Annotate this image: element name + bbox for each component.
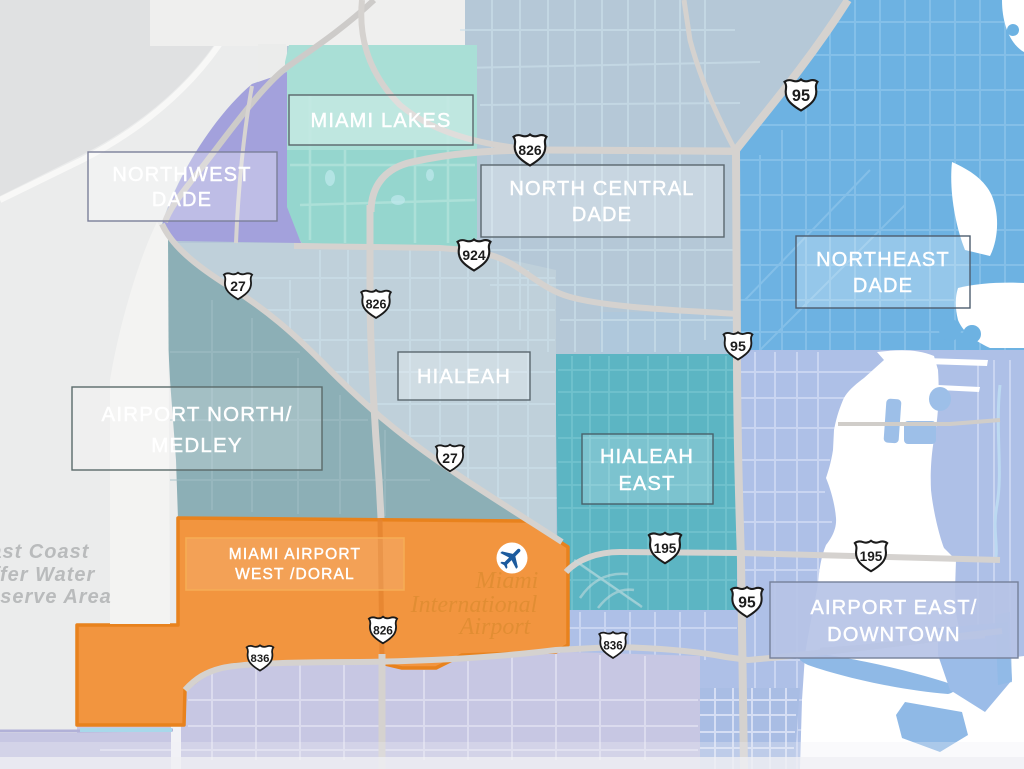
svg-text:826: 826 (518, 142, 541, 158)
svg-text:MEDLEY: MEDLEY (151, 434, 243, 457)
svg-text:EAST: EAST (618, 473, 675, 495)
svg-text:DOWNTOWN: DOWNTOWN (827, 624, 961, 646)
svg-text:195: 195 (654, 541, 677, 556)
svg-text:DADE: DADE (572, 204, 632, 226)
svg-text:East Coast: East Coast (0, 541, 90, 563)
svg-text:27: 27 (442, 450, 458, 466)
svg-text:DADE: DADE (152, 189, 212, 211)
svg-text:27: 27 (230, 278, 246, 294)
svg-text:95: 95 (730, 339, 746, 355)
svg-text:95: 95 (792, 87, 810, 105)
svg-text:AIRPORT EAST/: AIRPORT EAST/ (810, 597, 977, 619)
svg-text:826: 826 (366, 298, 387, 312)
svg-text:WEST /DORAL: WEST /DORAL (235, 566, 355, 583)
svg-text:NORTHWEST: NORTHWEST (112, 164, 251, 186)
svg-text:HIALEAH: HIALEAH (600, 446, 694, 468)
svg-text:195: 195 (860, 549, 883, 564)
svg-text:MIAMI AIRPORT: MIAMI AIRPORT (229, 546, 361, 563)
svg-text:836: 836 (603, 639, 623, 652)
svg-text:Airport: Airport (458, 614, 532, 640)
svg-text:HIALEAH: HIALEAH (417, 366, 511, 388)
svg-text:AIRPORT NORTH/: AIRPORT NORTH/ (101, 403, 292, 426)
svg-text:826: 826 (373, 623, 393, 637)
svg-text:NORTHEAST: NORTHEAST (816, 249, 950, 271)
svg-text:MIAMI LAKES: MIAMI LAKES (310, 110, 451, 132)
svg-text:NORTH CENTRAL: NORTH CENTRAL (509, 178, 694, 200)
svg-text:Preserve Area: Preserve Area (0, 586, 112, 608)
svg-text:DADE: DADE (853, 275, 913, 297)
svg-text:924: 924 (462, 247, 485, 263)
svg-text:95: 95 (738, 595, 756, 612)
svg-text:Buffer Water: Buffer Water (0, 564, 96, 586)
svg-text:836: 836 (251, 653, 270, 665)
